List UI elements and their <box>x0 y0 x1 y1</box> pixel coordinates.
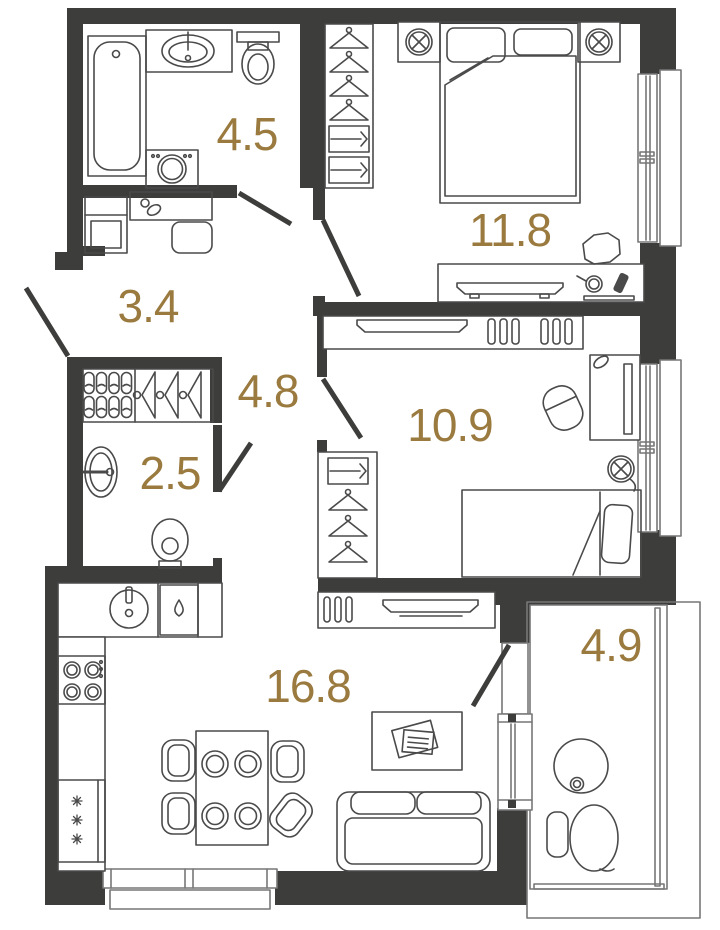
room-label-bedroom: 11.8 <box>469 207 551 253</box>
window-living <box>103 869 277 909</box>
room-label-wc: 2.5 <box>140 450 201 496</box>
bathroom-sink-icon <box>146 30 232 72</box>
coffee-table-icon <box>372 712 462 770</box>
child-desk-icon <box>590 354 640 440</box>
child-wardrobe-icon <box>318 452 377 578</box>
hall-stool-icon <box>172 222 212 253</box>
bedroom-dresser-icon <box>438 264 644 302</box>
washing-machine-icon <box>146 150 198 188</box>
room-label-hallway: 3.4 <box>118 283 179 329</box>
bathroom-door-leaf <box>239 193 291 224</box>
child-tv-stand-icon <box>323 316 583 349</box>
sofa-icon <box>337 792 490 871</box>
entrance-door-leaf <box>26 288 68 356</box>
room-label-balcony: 4.9 <box>581 622 642 668</box>
single-bed-icon <box>462 490 641 577</box>
bathtub-icon <box>88 36 146 176</box>
hall-cabinet-icon <box>85 197 127 253</box>
balcony-door-window <box>498 643 532 810</box>
living-tv-stand-icon <box>318 592 495 628</box>
shoe-rack-icon <box>83 369 213 422</box>
dining-table-icon <box>196 731 268 845</box>
room-label-kitchen-living: 16.8 <box>265 663 351 709</box>
hall-console-icon <box>130 192 212 220</box>
bedroom-door-leaf <box>323 220 359 296</box>
room-label-corridor: 4.8 <box>238 368 299 414</box>
coat-hangers-icon <box>134 372 202 418</box>
wc-toilet-icon <box>152 519 188 568</box>
bedroom-wardrobe-icon <box>325 24 373 188</box>
room-label-child-room: 10.9 <box>407 402 493 448</box>
window-child-room <box>638 360 681 536</box>
child-chair-icon <box>538 381 587 435</box>
bedroom-chair-icon <box>583 233 620 264</box>
wc-sink-icon <box>84 447 117 497</box>
child-room-door-leaf <box>323 379 361 438</box>
bathroom-toilet-icon <box>237 32 279 84</box>
room-label-bathroom: 4.5 <box>217 111 278 157</box>
floor-plan: 4.5 3.4 4.8 2.5 11.8 10.9 16.8 4.9 <box>0 0 720 930</box>
wc-door-leaf <box>219 443 251 491</box>
child-lamp-icon <box>608 456 635 491</box>
window-bedroom <box>638 70 681 246</box>
furniture-layer <box>0 0 720 930</box>
double-bed-icon <box>440 22 580 203</box>
